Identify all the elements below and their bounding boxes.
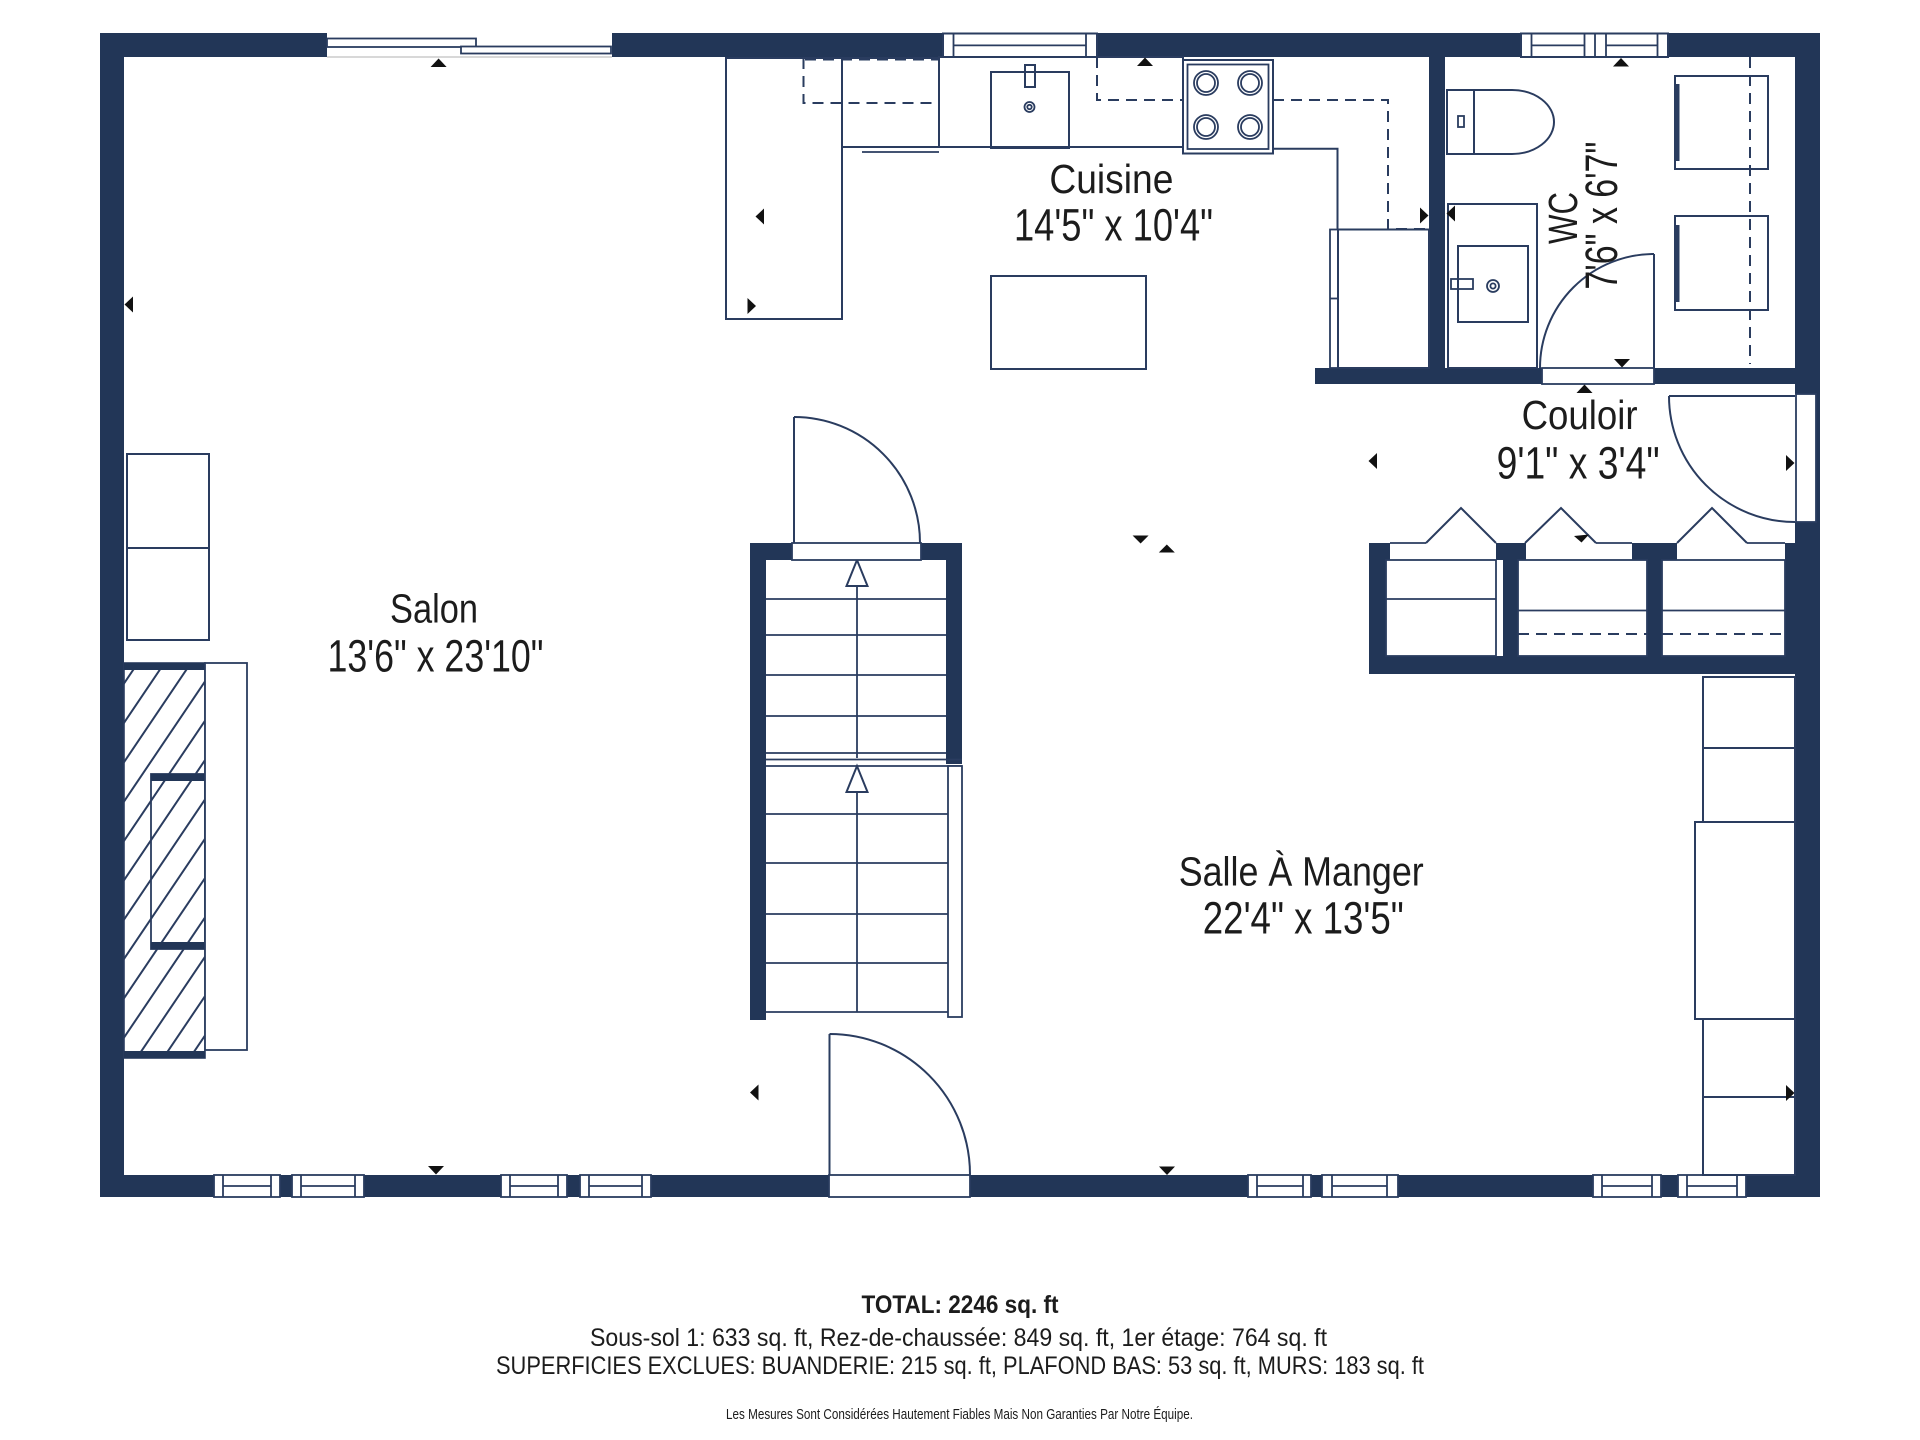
svg-text:Sous-sol 1: 633 sq. ft, Rez-de: Sous-sol 1: 633 sq. ft, Rez-de-chaussée:…	[590, 1324, 1327, 1352]
svg-text:22'4" x 13'5": 22'4" x 13'5"	[1203, 893, 1404, 944]
svg-text:Salle À Manger: Salle À Manger	[1179, 849, 1424, 895]
svg-text:9'1" x 3'4": 9'1" x 3'4"	[1497, 438, 1660, 489]
svg-text:13'6" x 23'10": 13'6" x 23'10"	[328, 630, 544, 681]
svg-text:14'5" x 10'4": 14'5" x 10'4"	[1014, 199, 1213, 250]
svg-text:Salon: Salon	[390, 586, 478, 632]
svg-text:Couloir: Couloir	[1522, 392, 1638, 438]
svg-text:7'6" x 6'7": 7'6" x 6'7"	[1576, 142, 1627, 290]
svg-text:SUPERFICIES EXCLUES: BUANDERIE: SUPERFICIES EXCLUES: BUANDERIE: 215 sq. …	[496, 1352, 1424, 1380]
svg-text:Les Mesures Sont Considérées H: Les Mesures Sont Considérées Hautement F…	[726, 1406, 1193, 1423]
svg-text:TOTAL: 2246 sq. ft: TOTAL: 2246 sq. ft	[862, 1291, 1060, 1319]
svg-text:Cuisine: Cuisine	[1049, 156, 1173, 202]
